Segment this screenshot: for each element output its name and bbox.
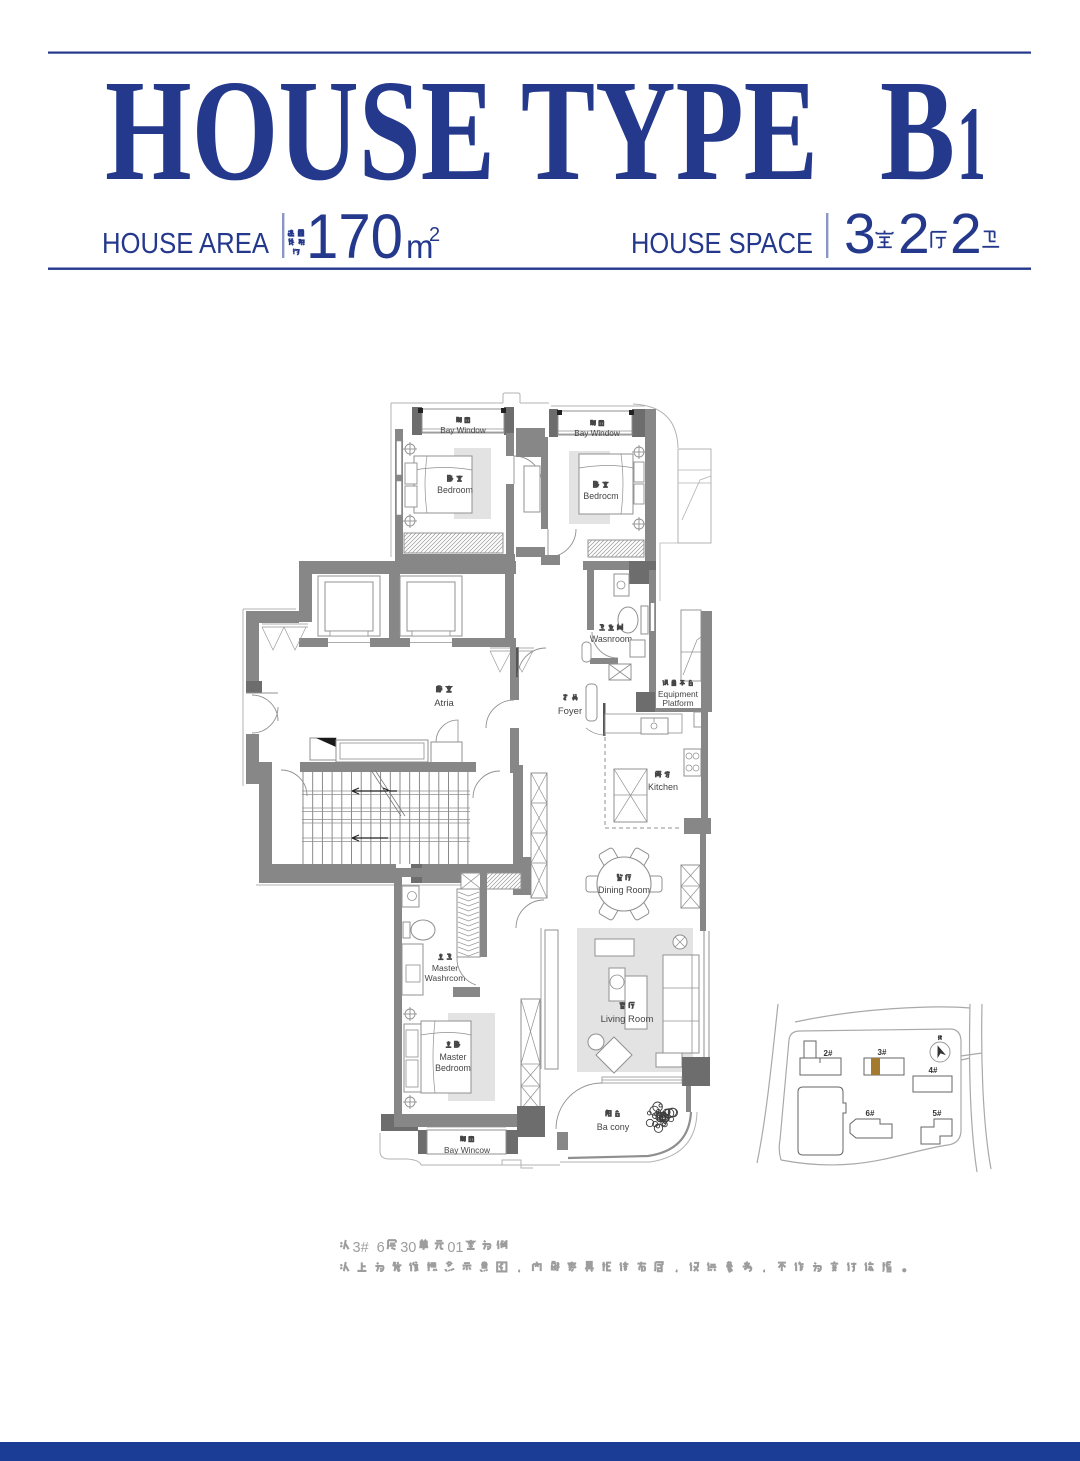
- svg-text:Kitchen: Kitchen: [648, 782, 678, 792]
- svg-text:Dining Room: Dining Room: [598, 885, 650, 895]
- svg-text:30: 30: [400, 1240, 416, 1256]
- svg-text:2: 2: [898, 202, 930, 266]
- svg-text:6: 6: [377, 1240, 385, 1256]
- svg-text:4#: 4#: [929, 1066, 938, 1075]
- svg-text:2: 2: [429, 224, 440, 246]
- svg-text:Wasnroom: Wasnroom: [590, 634, 632, 644]
- svg-text:6#: 6#: [866, 1109, 875, 1118]
- svg-text:Platform: Platform: [662, 698, 693, 708]
- svg-text:5#: 5#: [933, 1109, 942, 1118]
- svg-text:170: 170: [306, 202, 403, 272]
- svg-text:Living Room: Living Room: [601, 1014, 654, 1025]
- svg-text:Master: Master: [440, 1052, 467, 1062]
- svg-text:Bedrocm: Bedrocm: [583, 491, 618, 501]
- svg-text:HOUSE SPACE: HOUSE SPACE: [631, 228, 813, 260]
- svg-text:Bay Wincow: Bay Wincow: [444, 1145, 491, 1155]
- svg-text:B: B: [880, 51, 955, 211]
- svg-text:3#: 3#: [353, 1240, 369, 1256]
- svg-text:HOUSE AREA: HOUSE AREA: [102, 228, 270, 260]
- svg-text:01: 01: [447, 1240, 463, 1256]
- svg-text:2: 2: [950, 202, 982, 266]
- svg-text:Ba cony: Ba cony: [597, 1122, 630, 1132]
- svg-text:Bay Window: Bay Window: [440, 426, 486, 435]
- svg-text:1: 1: [957, 85, 986, 202]
- svg-text:2#: 2#: [824, 1049, 833, 1058]
- svg-text:Bedroom: Bedroom: [435, 1063, 471, 1073]
- svg-text:Foyer: Foyer: [558, 706, 582, 717]
- svg-text:Bay Window: Bay Window: [574, 429, 620, 438]
- svg-text:3: 3: [844, 202, 876, 266]
- svg-text:HOUSE TYPE: HOUSE TYPE: [105, 51, 818, 211]
- svg-text:Master: Master: [432, 963, 458, 973]
- svg-text:Washrcom: Washrcom: [425, 973, 466, 983]
- svg-text:Bedroom: Bedroom: [437, 485, 473, 495]
- svg-text:3#: 3#: [878, 1048, 887, 1057]
- svg-text:Atria: Atria: [434, 698, 454, 709]
